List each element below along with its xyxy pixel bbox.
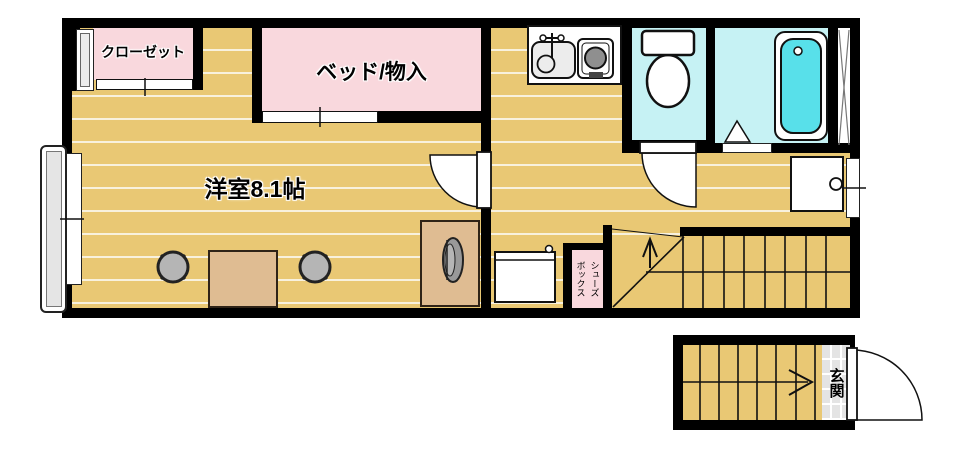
stairs-floor — [612, 236, 850, 308]
washing-machine-space — [790, 156, 844, 212]
table — [208, 250, 278, 308]
stairs-top-wall — [680, 227, 850, 236]
entrance-door — [847, 348, 922, 420]
closet-right-wall — [193, 18, 203, 90]
pipe-shaft — [838, 28, 850, 147]
entrance-label: 玄関 — [820, 350, 852, 416]
toilet-bottom-wall — [622, 140, 715, 153]
bed-storage-left-wall — [252, 18, 262, 123]
bath-threshold — [722, 143, 772, 153]
bed-storage-label: ベッド/物入 — [262, 56, 481, 86]
toilet-right-wall — [706, 18, 715, 153]
left-window — [66, 153, 82, 285]
desk — [420, 220, 480, 307]
western-room-label: 洋室8.1帖 — [145, 170, 365, 204]
bath-room — [715, 28, 828, 143]
balcony-panel — [46, 151, 62, 307]
shoebox-top-wall — [563, 243, 603, 250]
bath-right-wall — [828, 18, 838, 147]
kitchen-counter — [527, 25, 622, 85]
toilet-room — [632, 28, 706, 140]
stairs-left-wall — [603, 225, 612, 318]
appliance-box — [494, 251, 556, 303]
bed-storage-bottom-wall — [378, 111, 481, 123]
toilet-left-wall — [622, 18, 632, 153]
closet-sliding-door — [96, 79, 193, 90]
closet-label: クローゼット — [93, 42, 193, 62]
entrance-stairs-floor — [683, 345, 822, 420]
floor-plan-canvas: クローゼット ベッド/物入 洋室8.1帖 シューズ ボックス 玄関 — [0, 0, 975, 450]
right-window — [846, 158, 860, 218]
shoebox-label: シューズ ボックス — [571, 251, 604, 307]
bed-storage-sliding-door — [262, 111, 378, 123]
closet-window-pane — [80, 33, 90, 87]
